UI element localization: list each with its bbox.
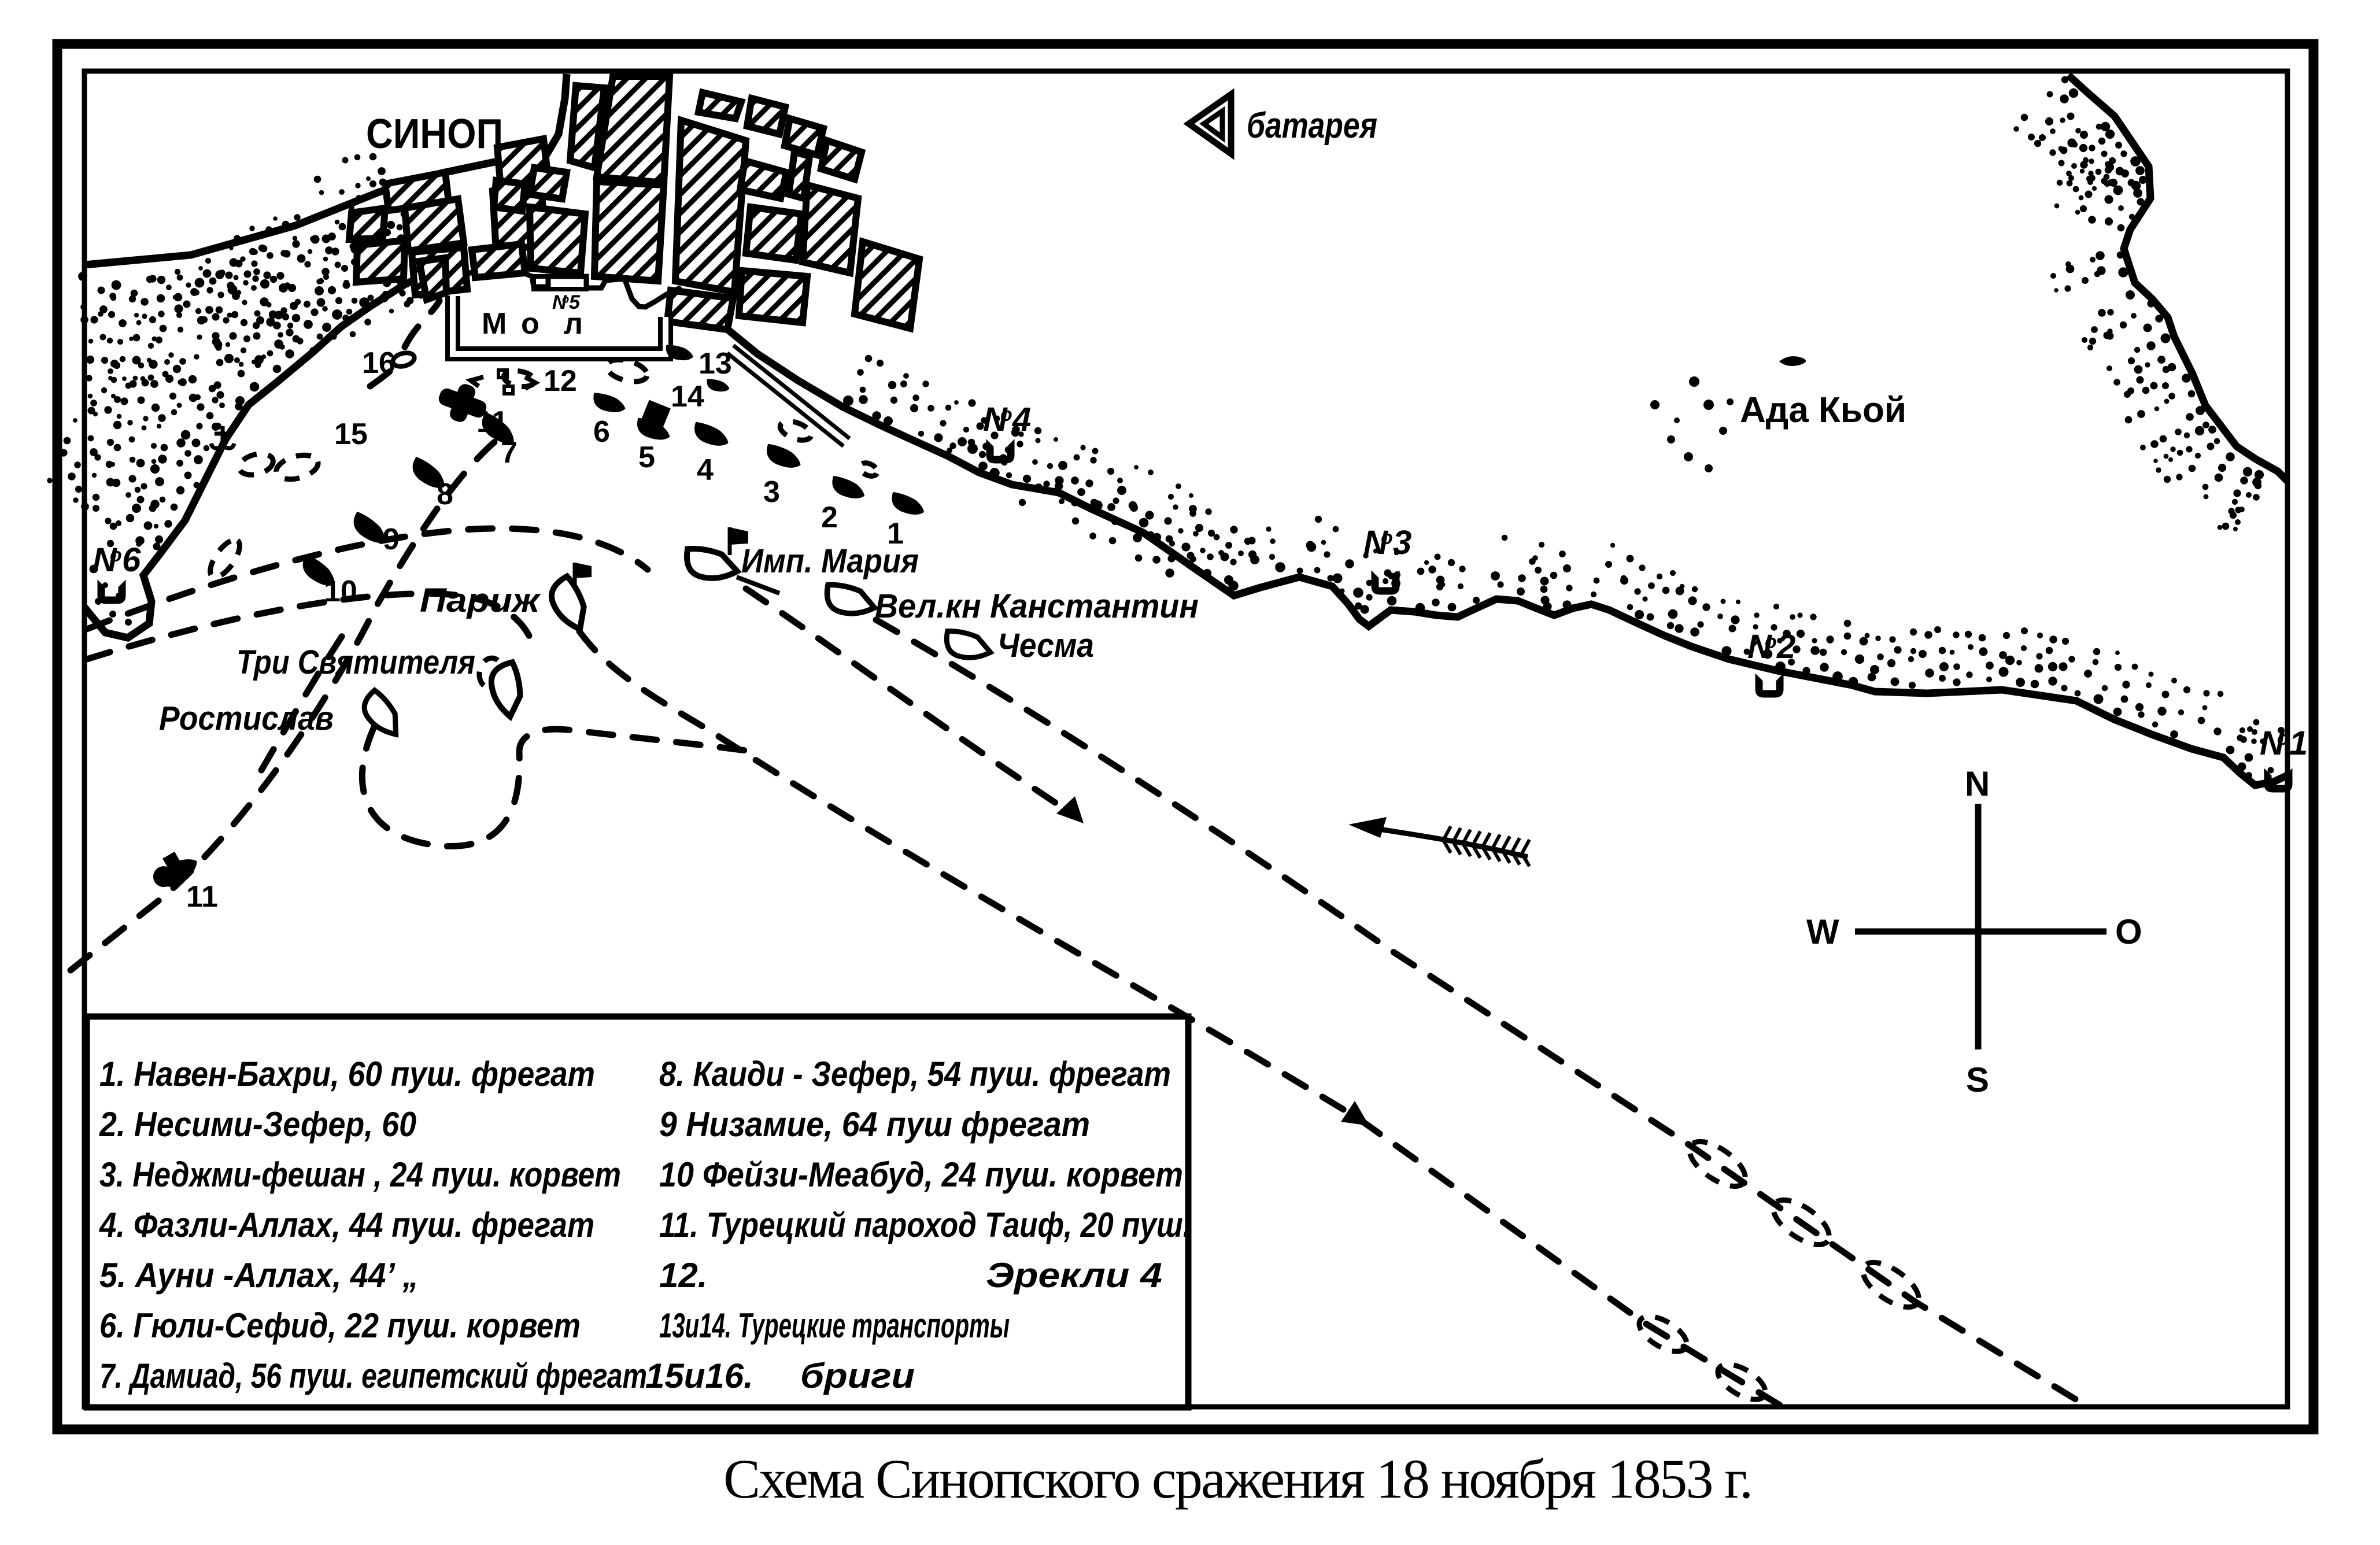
svg-text:O: O [2115,912,2142,951]
svg-text:o: o [1000,404,1012,426]
svg-text:14: 14 [671,380,704,413]
svg-text:9 Низамие, 64 пуш фрегат: 9 Низамие, 64 пуш фрегат [659,1105,1090,1144]
svg-text:o: o [562,293,569,306]
svg-text:o: o [1765,631,1777,653]
svg-text:бриги: бриги [800,1357,915,1395]
svg-text:7. Дамиад, 56 пуш. египетский: 7. Дамиад, 56 пуш. египетский фрегат [99,1357,647,1395]
svg-text:12: 12 [544,364,577,398]
svg-text:16: 16 [362,346,396,380]
svg-text:6: 6 [593,415,610,449]
svg-text:Три Святителя: Три Святителя [236,644,475,681]
svg-text:6. Гюли-Сефид, 22 пуш. корвет: 6. Гюли-Сефид, 22 пуш. корвет [99,1306,581,1345]
svg-text:10 Фейзи-Меабуд, 24 пуш. корве: 10 Фейзи-Меабуд, 24 пуш. корвет [659,1155,1183,1194]
svg-text:9: 9 [383,523,400,556]
svg-text:2: 2 [1776,628,1795,666]
svg-text:13: 13 [699,347,732,380]
svg-text:Чесма: Чесма [997,627,1094,664]
svg-text:N: N [1965,764,1990,803]
svg-text:8: 8 [437,478,453,511]
svg-text:Ростислав: Ростислав [159,700,334,737]
svg-text:М: М [482,307,507,341]
svg-text:3: 3 [763,475,780,509]
svg-text:СИНОП: СИНОП [366,111,503,157]
svg-text:7: 7 [501,436,518,470]
svg-text:Имп. Мария: Имп. Мария [741,542,919,580]
svg-text:13и14. Турецкие транспорты: 13и14. Турецкие транспорты [659,1306,1010,1345]
svg-text:6: 6 [122,541,141,579]
svg-text:o: o [2277,727,2289,749]
svg-text:2: 2 [821,501,838,534]
svg-text:4: 4 [1012,401,1031,438]
svg-text:o: o [110,544,122,566]
svg-text:Эрекли 4: Эрекли 4 [986,1256,1162,1295]
svg-text:Схема Синопского сражения 18 н: Схема Синопского сражения 18 ноября 1853… [723,1448,1753,1510]
svg-text:o: o [1381,527,1393,549]
svg-text:12.: 12. [659,1256,707,1295]
svg-text:о: о [521,307,539,341]
svg-text:5. Ауни -Аллах, 44’ „: 5. Ауни -Аллах, 44’ „ [99,1256,419,1295]
svg-text:1. Навен-Бахри, 60 пуш. фрегат: 1. Навен-Бахри, 60 пуш. фрегат [99,1055,595,1093]
svg-text:11: 11 [186,880,218,914]
svg-text:2. Несими-Зефер, 60: 2. Несими-Зефер, 60 [99,1105,416,1144]
svg-text:15: 15 [334,417,368,451]
svg-text:Ада Кьой: Ада Кьой [1740,390,1906,430]
svg-text:3. Неджми-фешан , 24 пуш. корв: 3. Неджми-фешан , 24 пуш. корвет [99,1155,621,1194]
svg-text:10: 10 [324,575,357,608]
svg-text:W: W [1806,912,1839,951]
svg-text:Париж: Париж [420,582,542,619]
svg-text:л: л [564,307,583,341]
svg-text:1: 1 [2289,725,2308,762]
svg-text:батарея: батарея [1247,106,1377,146]
svg-text:15и16.: 15и16. [645,1357,753,1395]
svg-text:4: 4 [697,453,714,487]
svg-text:11. Турецкий пароход Таиф, 20: 11. Турецкий пароход Таиф, 20 пуш. [659,1206,1191,1244]
svg-text:4. Фазли-Аллах, 44 пуш. фрегат: 4. Фазли-Аллах, 44 пуш. фрегат [99,1206,594,1244]
svg-text:Вел.кн Канстантин: Вел.кн Канстантин [875,587,1199,625]
svg-text:11: 11 [476,405,508,439]
svg-text:5: 5 [638,441,655,474]
svg-text:S: S [1966,1060,1989,1099]
svg-text:8. Каиди - Зефер, 54 пуш. фрег: 8. Каиди - Зефер, 54 пуш. фрегат [659,1055,1171,1093]
svg-text:3: 3 [1393,524,1411,561]
